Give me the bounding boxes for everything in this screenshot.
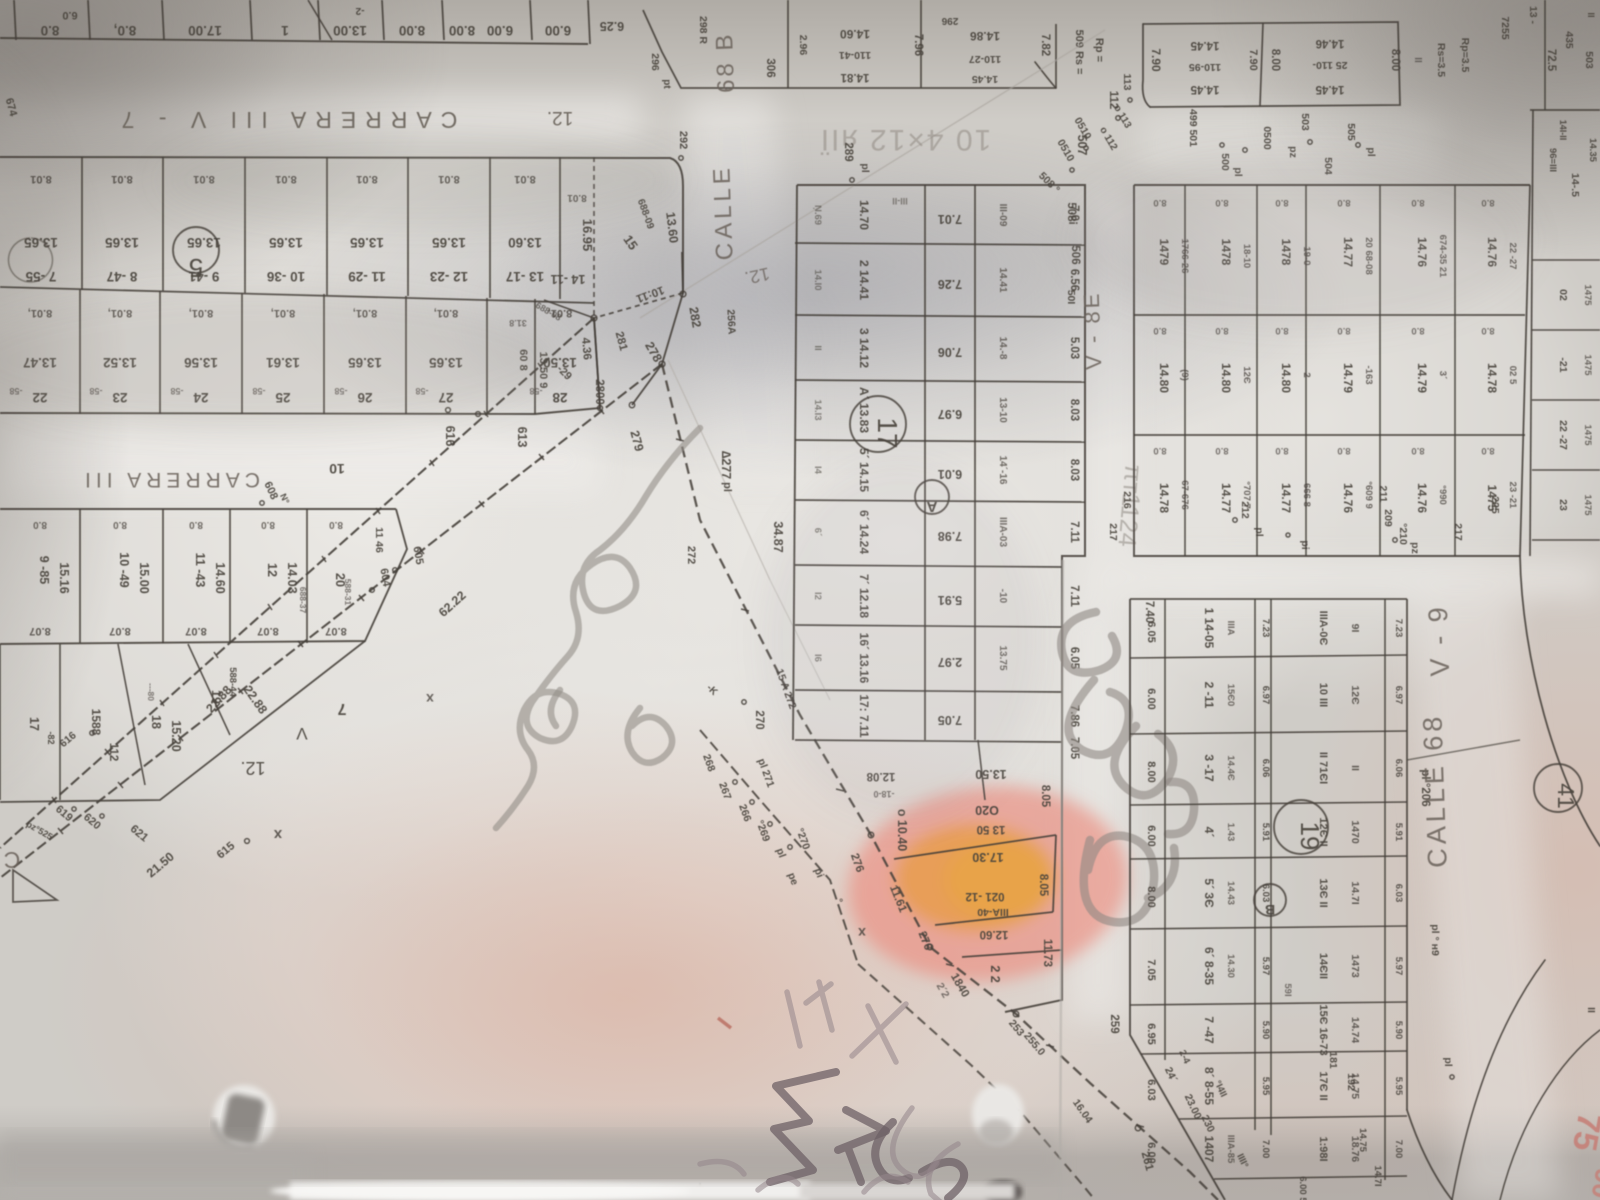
svg-text:1407: 1407: [1202, 1136, 1216, 1163]
svg-text:2800: 2800: [593, 379, 605, 405]
svg-text:2 2: 2 2: [988, 965, 1002, 982]
svg-text:IIIA-85: IIIA-85: [1225, 1135, 1236, 1164]
svg-text:14.70: 14.70: [857, 200, 871, 230]
svg-text:ІІ: ІІ: [812, 345, 823, 350]
svg-text:1475: 1475: [1582, 354, 1593, 376]
svg-text:x: x: [426, 691, 434, 707]
svg-text:B: B: [1265, 902, 1275, 918]
svg-text:6.00: 6.00: [1145, 1142, 1157, 1163]
svg-text:50І: 50І: [1065, 290, 1077, 305]
svg-text:14.І0: 14.І0: [812, 269, 823, 290]
svg-text:14.І3: 14.І3: [812, 399, 823, 420]
svg-text:96=III: 96=III: [1547, 148, 1558, 172]
svg-text:9 -85: 9 -85: [37, 556, 51, 585]
svg-text:7.06: 7.06: [938, 345, 962, 359]
svg-text:5.90: 5.90: [1260, 1021, 1271, 1040]
svg-text:8.07: 8.07: [257, 625, 278, 637]
svg-text:14.78: 14.78: [1485, 363, 1499, 393]
svg-text:7.96: 7.96: [912, 34, 924, 56]
svg-text:8.0: 8.0: [189, 519, 203, 530]
svg-text:8.0: 8.0: [1215, 445, 1228, 456]
svg-text:1475: 1475: [1485, 485, 1499, 512]
svg-text:5: 5: [189, 253, 203, 283]
svg-text:°210: °210: [1397, 523, 1409, 545]
svg-text:8.07: 8.07: [109, 625, 130, 637]
svg-text:14.77: 14.77: [1279, 483, 1293, 513]
svg-text:507: 507: [1075, 135, 1089, 156]
svg-text:ІІ: ІІ: [1412, 57, 1423, 63]
svg-text:110-27: 110-27: [969, 53, 1001, 65]
svg-text:8.0: 8.0: [1153, 445, 1166, 456]
svg-text:3 -17: 3 -17: [1202, 754, 1216, 782]
svg-text:(9): (9): [1179, 369, 1190, 381]
svg-text:5.91: 5.91: [1260, 823, 1271, 842]
svg-text:A´ 13.83: A´ 13.83: [857, 387, 871, 433]
svg-text:7.82: 7.82: [1039, 34, 1051, 56]
svg-text:10: 10: [329, 461, 345, 477]
svg-text:-2: -2: [355, 5, 364, 16]
svg-text:15.20: 15.20: [169, 720, 183, 751]
svg-text:11 -29: 11 -29: [348, 269, 386, 284]
svg-text:7.11: 7.11: [1068, 521, 1080, 543]
svg-text:15.16: 15.16: [57, 562, 71, 593]
svg-text:II 71ЄІ: II 71ЄІ: [1317, 752, 1329, 784]
svg-text:13.65: 13.65: [432, 235, 466, 250]
svg-text:1475: 1475: [1582, 284, 1593, 306]
svg-text:021 -12: 021 -12: [965, 890, 1004, 902]
svg-text:503: 503: [1583, 51, 1595, 69]
svg-text:5.95: 5.95: [1260, 1077, 1271, 1096]
svg-text:14.80: 14.80: [1157, 363, 1171, 393]
svg-text:8.00: 8.00: [1145, 761, 1157, 782]
svg-text:110-95: 110-95: [1189, 61, 1221, 73]
svg-text:-82: -82: [46, 731, 56, 744]
svg-text:12: 12: [265, 563, 279, 577]
svg-text:11.73: 11.73: [1041, 939, 1053, 967]
svg-text:613: 613: [515, 427, 529, 448]
svg-text:1 14-05: 1 14-05: [1202, 608, 1216, 649]
svg-text:13.65: 13.65: [24, 235, 58, 250]
svg-text:7255: 7255: [1499, 16, 1511, 40]
svg-text:IIIA: IIIA: [1225, 621, 1236, 636]
svg-text:688-37: 688-37: [298, 587, 308, 614]
svg-text:8.0: 8.0: [1411, 445, 1424, 456]
svg-text:8.0: 8.0: [33, 519, 47, 530]
svg-text:7.90: 7.90: [1247, 49, 1259, 70]
svg-text:23 -21: 23 -21: [1507, 482, 1518, 510]
svg-text:5.90: 5.90: [1393, 1021, 1404, 1040]
svg-text:14.30: 14.30: [1225, 954, 1236, 978]
svg-text:8.0: 8.0: [1275, 445, 1288, 456]
svg-text:14.35: 14.35: [1587, 138, 1598, 162]
svg-text:68 B: 68 B: [711, 31, 740, 93]
svg-text:pz: pz: [1409, 542, 1421, 554]
svg-text:14.43: 14.43: [1225, 881, 1236, 905]
svg-text:ІІ: ІІ: [1586, 12, 1596, 17]
svg-text:292: 292: [677, 131, 689, 149]
svg-text:7.05: 7.05: [1145, 959, 1157, 980]
svg-text:13.65: 13.65: [105, 235, 139, 250]
svg-text:12 -23: 12 -23: [429, 269, 468, 284]
svg-text:pt: pt: [661, 79, 672, 89]
svg-text:15Є0: 15Є0: [1225, 684, 1236, 707]
svg-text:13 50: 13 50: [977, 823, 1006, 835]
svg-text:18: 18: [149, 715, 163, 729]
svg-text:14.45: 14.45: [1190, 83, 1219, 95]
svg-text:67-676: 67-676: [1179, 480, 1190, 510]
svg-text:2: 2: [1301, 372, 1312, 377]
svg-text:6.06: 6.06: [1393, 759, 1404, 778]
svg-text:02: 02: [1557, 289, 1569, 301]
svg-text:270: 270: [753, 710, 765, 729]
svg-text:8.0: 8.0: [1411, 325, 1424, 336]
svg-text:7.01: 7.01: [938, 212, 962, 226]
svg-text:6.95: 6.95: [1145, 1023, 1157, 1044]
svg-text:13 -: 13 -: [1527, 6, 1539, 25]
svg-text:12Є: 12Є: [1349, 685, 1361, 705]
svg-text:14.4Є: 14.4Є: [1225, 755, 1236, 780]
svg-text:8.0: 8.0: [1337, 445, 1350, 456]
svg-text:pl: pl: [1442, 1057, 1454, 1066]
svg-text:14.60: 14.60: [840, 27, 870, 41]
svg-text:8.00: 8.00: [399, 23, 425, 38]
svg-text:5.95: 5.95: [1393, 1077, 1404, 1096]
svg-text:14.80: 14.80: [1219, 363, 1233, 393]
svg-text:14.76: 14.76: [1415, 483, 1429, 513]
svg-text:25 110-: 25 110-: [1312, 59, 1348, 71]
svg-text:10 -36: 10 -36: [266, 269, 305, 284]
svg-text:14.80: 14.80: [1279, 363, 1293, 393]
svg-text:14ЄІІ: 14ЄІІ: [1317, 953, 1329, 979]
svg-text:5´ 3Є: 5´ 3Є: [1202, 878, 1216, 908]
svg-text:12.: 12.: [547, 107, 573, 128]
svg-text:6.25: 6.25: [600, 19, 624, 33]
svg-text:181: 181: [1327, 1051, 1339, 1069]
svg-text:41: 41: [1553, 783, 1579, 809]
svg-text:Rp =: Rp =: [1093, 38, 1105, 62]
svg-text:6.00 5.27: 6.00 5.27: [1297, 1176, 1308, 1200]
svg-text:14.74: 14.74: [1349, 1017, 1361, 1043]
svg-text:CALLE 68: CALLE 68: [1417, 712, 1452, 868]
svg-text:13.00: 13.00: [333, 23, 367, 38]
svg-text:13-10: 13-10: [997, 397, 1008, 423]
svg-text:pl: pl: [1253, 527, 1265, 536]
svg-text:10 III: 10 III: [1317, 683, 1329, 707]
svg-text:8.07: 8.07: [185, 625, 206, 637]
svg-text:503: 503: [1299, 113, 1311, 131]
svg-text:499 501: 499 501: [1187, 109, 1199, 147]
svg-text:6.97: 6.97: [1393, 686, 1404, 705]
svg-text:7.00: 7.00: [1260, 1140, 1271, 1159]
svg-text:7.23: 7.23: [1260, 619, 1271, 638]
svg-text:V - 9: V - 9: [1423, 604, 1455, 677]
svg-text:pl: pl: [859, 163, 871, 172]
svg-text:6.03: 6.03: [1393, 884, 1404, 903]
svg-text:-163: -163: [1363, 365, 1374, 384]
svg-text:-21: -21: [1557, 357, 1569, 372]
svg-text:23: 23: [1557, 499, 1569, 511]
svg-text:8.0: 8.0: [113, 519, 127, 530]
svg-text:22 -27: 22 -27: [1557, 420, 1569, 450]
svg-text:13 -17: 13 -17: [506, 269, 544, 284]
svg-text:17.00: 17.00: [188, 23, 222, 38]
svg-text:296: 296: [649, 53, 661, 71]
svg-text:x: x: [273, 826, 282, 843]
svg-text:13.60: 13.60: [508, 235, 542, 250]
svg-text:6.03: 6.03: [1145, 1079, 1157, 1100]
svg-text:110-41: 110-41: [839, 49, 871, 61]
svg-text:15.00: 15.00: [137, 562, 151, 593]
svg-text:1470: 1470: [1349, 820, 1361, 844]
svg-text:3´: 3´: [1437, 371, 1448, 379]
svg-text:11 -43: 11 -43: [193, 553, 207, 588]
svg-text:7.11: 7.11: [1068, 585, 1080, 607]
svg-text:17: 17: [27, 717, 41, 731]
svg-text:259: 259: [1108, 1014, 1120, 1033]
svg-text:113: 113: [1121, 74, 1133, 91]
svg-text:1475: 1475: [1582, 494, 1593, 516]
svg-text:72.5: 72.5: [1545, 49, 1557, 72]
svg-text:588-31: 588-31: [343, 579, 353, 606]
svg-text:14.03: 14.03: [285, 562, 299, 593]
svg-text:V - 8E: V - 8E: [1079, 290, 1107, 370]
svg-text:8.0: 8.0: [1481, 325, 1494, 336]
svg-text:6.00: 6.00: [487, 23, 513, 38]
svg-text:8.0: 8.0: [261, 519, 275, 530]
svg-text:x: x: [858, 925, 866, 941]
svg-text:13Є ІІ: 13Є ІІ: [1317, 878, 1329, 907]
svg-text:1473: 1473: [1349, 954, 1361, 978]
svg-text:2 14.41: 2 14.41: [857, 260, 871, 300]
svg-text:217: 217: [1452, 523, 1464, 541]
svg-text:217: 217: [1107, 523, 1119, 541]
svg-text:7.00: 7.00: [1393, 1140, 1404, 1159]
svg-text:14І-ІІ: 14І-ІІ: [1558, 120, 1568, 141]
svg-text:8.0,: 8.0,: [114, 23, 137, 38]
svg-text:16.95: 16.95: [580, 219, 595, 252]
svg-text:14.45: 14.45: [1315, 83, 1344, 95]
svg-text:1475: 1475: [1582, 424, 1593, 446]
svg-text:Rs=3.5: Rs=3.5: [1435, 43, 1447, 77]
svg-text:pl: pl: [721, 482, 733, 492]
svg-text:306: 306: [764, 58, 776, 77]
svg-text:298 R: 298 R: [697, 16, 709, 44]
svg-text:17.30: 17.30: [972, 850, 1003, 864]
svg-text:508: 508: [1065, 202, 1077, 222]
svg-text:8.0: 8.0: [41, 23, 60, 38]
svg-text:0500: 0500: [1261, 126, 1273, 150]
svg-text:14.77: 14.77: [1219, 483, 1233, 513]
svg-text:CALLE: CALLE: [708, 164, 738, 261]
svg-text:6.00: 6.00: [1145, 688, 1157, 709]
svg-text:6.06: 6.06: [1260, 759, 1271, 778]
svg-text:8.0: 8.0: [1153, 325, 1166, 336]
svg-text:272: 272: [685, 546, 697, 564]
svg-text:5.03: 5.03: [1068, 337, 1080, 359]
svg-text:°609 9: °609 9: [1363, 481, 1374, 509]
svg-text:14.60: 14.60: [213, 562, 227, 593]
svg-text:III-II: III-II: [892, 196, 908, 206]
svg-text:O20: O20: [975, 803, 999, 817]
svg-text:10 -49: 10 -49: [117, 552, 131, 587]
svg-text:6.97: 6.97: [938, 407, 962, 421]
svg-text:Rp=3.5: Rp=3.5: [1459, 38, 1471, 73]
svg-text:19: 19: [1295, 822, 1325, 851]
svg-text:6´ 8-35: 6´ 8-35: [1202, 947, 1216, 985]
svg-text:14.-8: 14.-8: [997, 337, 1008, 360]
svg-text:pl ° н9: pl ° н9: [1429, 924, 1441, 956]
svg-text:6.0: 6.0: [62, 9, 77, 21]
svg-text:6.00: 6.00: [545, 23, 571, 38]
svg-text:211: 211: [1377, 486, 1389, 503]
svg-text:15Є 16-73: 15Є 16-73: [1317, 1004, 1329, 1055]
svg-text:14.76: 14.76: [1341, 483, 1355, 513]
svg-text:11 46: 11 46: [373, 527, 385, 553]
svg-text:3 14.12: 3 14.12: [857, 328, 871, 368]
svg-text:6.00: 6.00: [1145, 825, 1157, 846]
svg-text:8.00: 8.00: [1269, 49, 1281, 71]
svg-text:7.90: 7.90: [1149, 48, 1163, 72]
svg-text:pi: pi: [1299, 540, 1311, 549]
svg-text:14.79: 14.79: [1341, 363, 1355, 393]
svg-text:6.97: 6.97: [1260, 686, 1271, 705]
svg-text:---80: ---80: [146, 683, 156, 701]
svg-text:V: V: [296, 724, 308, 743]
svg-text:4.36: 4.36: [579, 337, 593, 360]
svg-text:17: 17: [872, 417, 903, 448]
svg-text:8.03: 8.03: [1068, 459, 1080, 481]
svg-text:8.07: 8.07: [29, 625, 50, 637]
svg-text:1.43: 1.43: [1225, 823, 1236, 842]
svg-text:14 -11: 14 -11: [551, 272, 586, 286]
svg-text:12Є: 12Є: [1241, 366, 1252, 384]
svg-text:02 5: 02 5: [1507, 366, 1518, 385]
svg-text:8.07: 8.07: [325, 625, 346, 637]
svg-text:∆277: ∆277: [719, 451, 733, 480]
svg-text:14.46: 14.46: [1316, 37, 1345, 49]
svg-text:1:98І: 1:98І: [1317, 1136, 1329, 1161]
svg-text:C: C: [4, 847, 21, 873]
svg-text:289: 289: [842, 142, 854, 161]
svg-text:III-09: III-09: [997, 204, 1008, 227]
svg-text:1: 1: [281, 23, 289, 38]
svg-text:216: 216: [1121, 491, 1133, 509]
svg-text:ІІ: ІІ: [1349, 765, 1361, 771]
svg-text:8.00: 8.00: [1389, 49, 1401, 71]
svg-text:9І: 9І: [1349, 624, 1361, 633]
svg-text:14-.5: 14-.5: [1569, 173, 1581, 197]
svg-text:14.41: 14.41: [997, 267, 1008, 292]
svg-text:13.65: 13.65: [350, 235, 384, 250]
svg-text:14.45: 14.45: [1190, 39, 1219, 51]
svg-text:5.97: 5.97: [1260, 957, 1271, 976]
svg-text:14.45: 14.45: [972, 73, 998, 85]
svg-text:14.7І: 14.7І: [1372, 1165, 1383, 1186]
svg-text:4´: 4´: [1202, 827, 1216, 838]
svg-text:28: 28: [552, 390, 568, 405]
svg-text:13.65: 13.65: [269, 235, 303, 250]
svg-text:2 -11: 2 -11: [1202, 682, 1216, 709]
svg-text:14.78: 14.78: [1157, 483, 1171, 513]
svg-text:8.05: 8.05: [1039, 785, 1051, 808]
svg-text:296: 296: [941, 15, 958, 26]
svg-text:505: 505: [1345, 123, 1357, 141]
svg-text:14.79: 14.79: [1415, 363, 1429, 393]
svg-text:7 -47: 7 -47: [1202, 1016, 1216, 1044]
svg-text:IIIA-40: IIIA-40: [977, 906, 1009, 918]
svg-text:8.0: 8.0: [1215, 325, 1228, 336]
svg-text:14.75: 14.75: [1357, 1128, 1368, 1152]
svg-text:7.23: 7.23: [1393, 619, 1404, 638]
svg-text:14.86: 14.86: [970, 29, 1000, 43]
svg-text:209: 209: [1382, 509, 1394, 527]
svg-text:8.00: 8.00: [449, 23, 475, 38]
svg-text:12.: 12.: [240, 758, 265, 778]
svg-text:8.05: 8.05: [1037, 874, 1049, 897]
svg-text:509 Rs =: 509 Rs =: [1073, 30, 1085, 75]
svg-text:7.40: 7.40: [1143, 601, 1155, 623]
svg-text:ІІ: ІІ: [1585, 1007, 1597, 1013]
svg-text:6.05: 6.05: [1145, 621, 1157, 642]
svg-text:5.97: 5.97: [1393, 957, 1404, 976]
svg-text:І4: І4: [812, 466, 823, 475]
svg-text:8 -47: 8 -47: [107, 269, 138, 284]
svg-text:8.01: 8.01: [111, 173, 132, 185]
svg-text:7: 7: [337, 700, 346, 717]
svg-text:°707 7: °707 7: [1241, 481, 1252, 509]
svg-text:8.0: 8.0: [1481, 445, 1494, 456]
svg-text:Ņ.69: Ņ.69: [812, 205, 823, 225]
svg-text:14´-16: 14´-16: [997, 456, 1008, 485]
svg-text:CARRERA III V - 7: CARRERA III V - 7: [113, 107, 458, 133]
svg-text:59І: 59І: [1282, 983, 1293, 996]
svg-text:12.60: 12.60: [980, 928, 1009, 940]
svg-text:666 8: 666 8: [1301, 483, 1312, 507]
svg-text:CARRERA III: CARRERA III: [80, 468, 260, 491]
svg-text:256A: 256A: [724, 309, 737, 335]
svg-text:5.91: 5.91: [1393, 823, 1404, 842]
svg-text:IIIA-0Є: IIIA-0Є: [1317, 611, 1329, 646]
svg-text:2.96: 2.96: [797, 35, 809, 56]
svg-text:192: 192: [1345, 1073, 1357, 1091]
svg-text:6.56: 6.56: [1068, 269, 1080, 291]
svg-text:14.81: 14.81: [840, 71, 869, 83]
svg-text:8.00: 8.00: [1145, 886, 1157, 907]
svg-text:8.0: 8.0: [329, 519, 343, 530]
svg-text:14.7І: 14.7І: [1349, 881, 1361, 904]
svg-text:°990: °990: [1437, 485, 1448, 505]
svg-text:435: 435: [1563, 31, 1575, 49]
svg-text:8.03: 8.03: [1068, 399, 1080, 421]
svg-text:8.01: 8.01: [30, 173, 51, 185]
svg-text:17Є ІІ: 17Є ІІ: [1317, 1071, 1329, 1100]
svg-text:7.26: 7.26: [938, 277, 962, 291]
